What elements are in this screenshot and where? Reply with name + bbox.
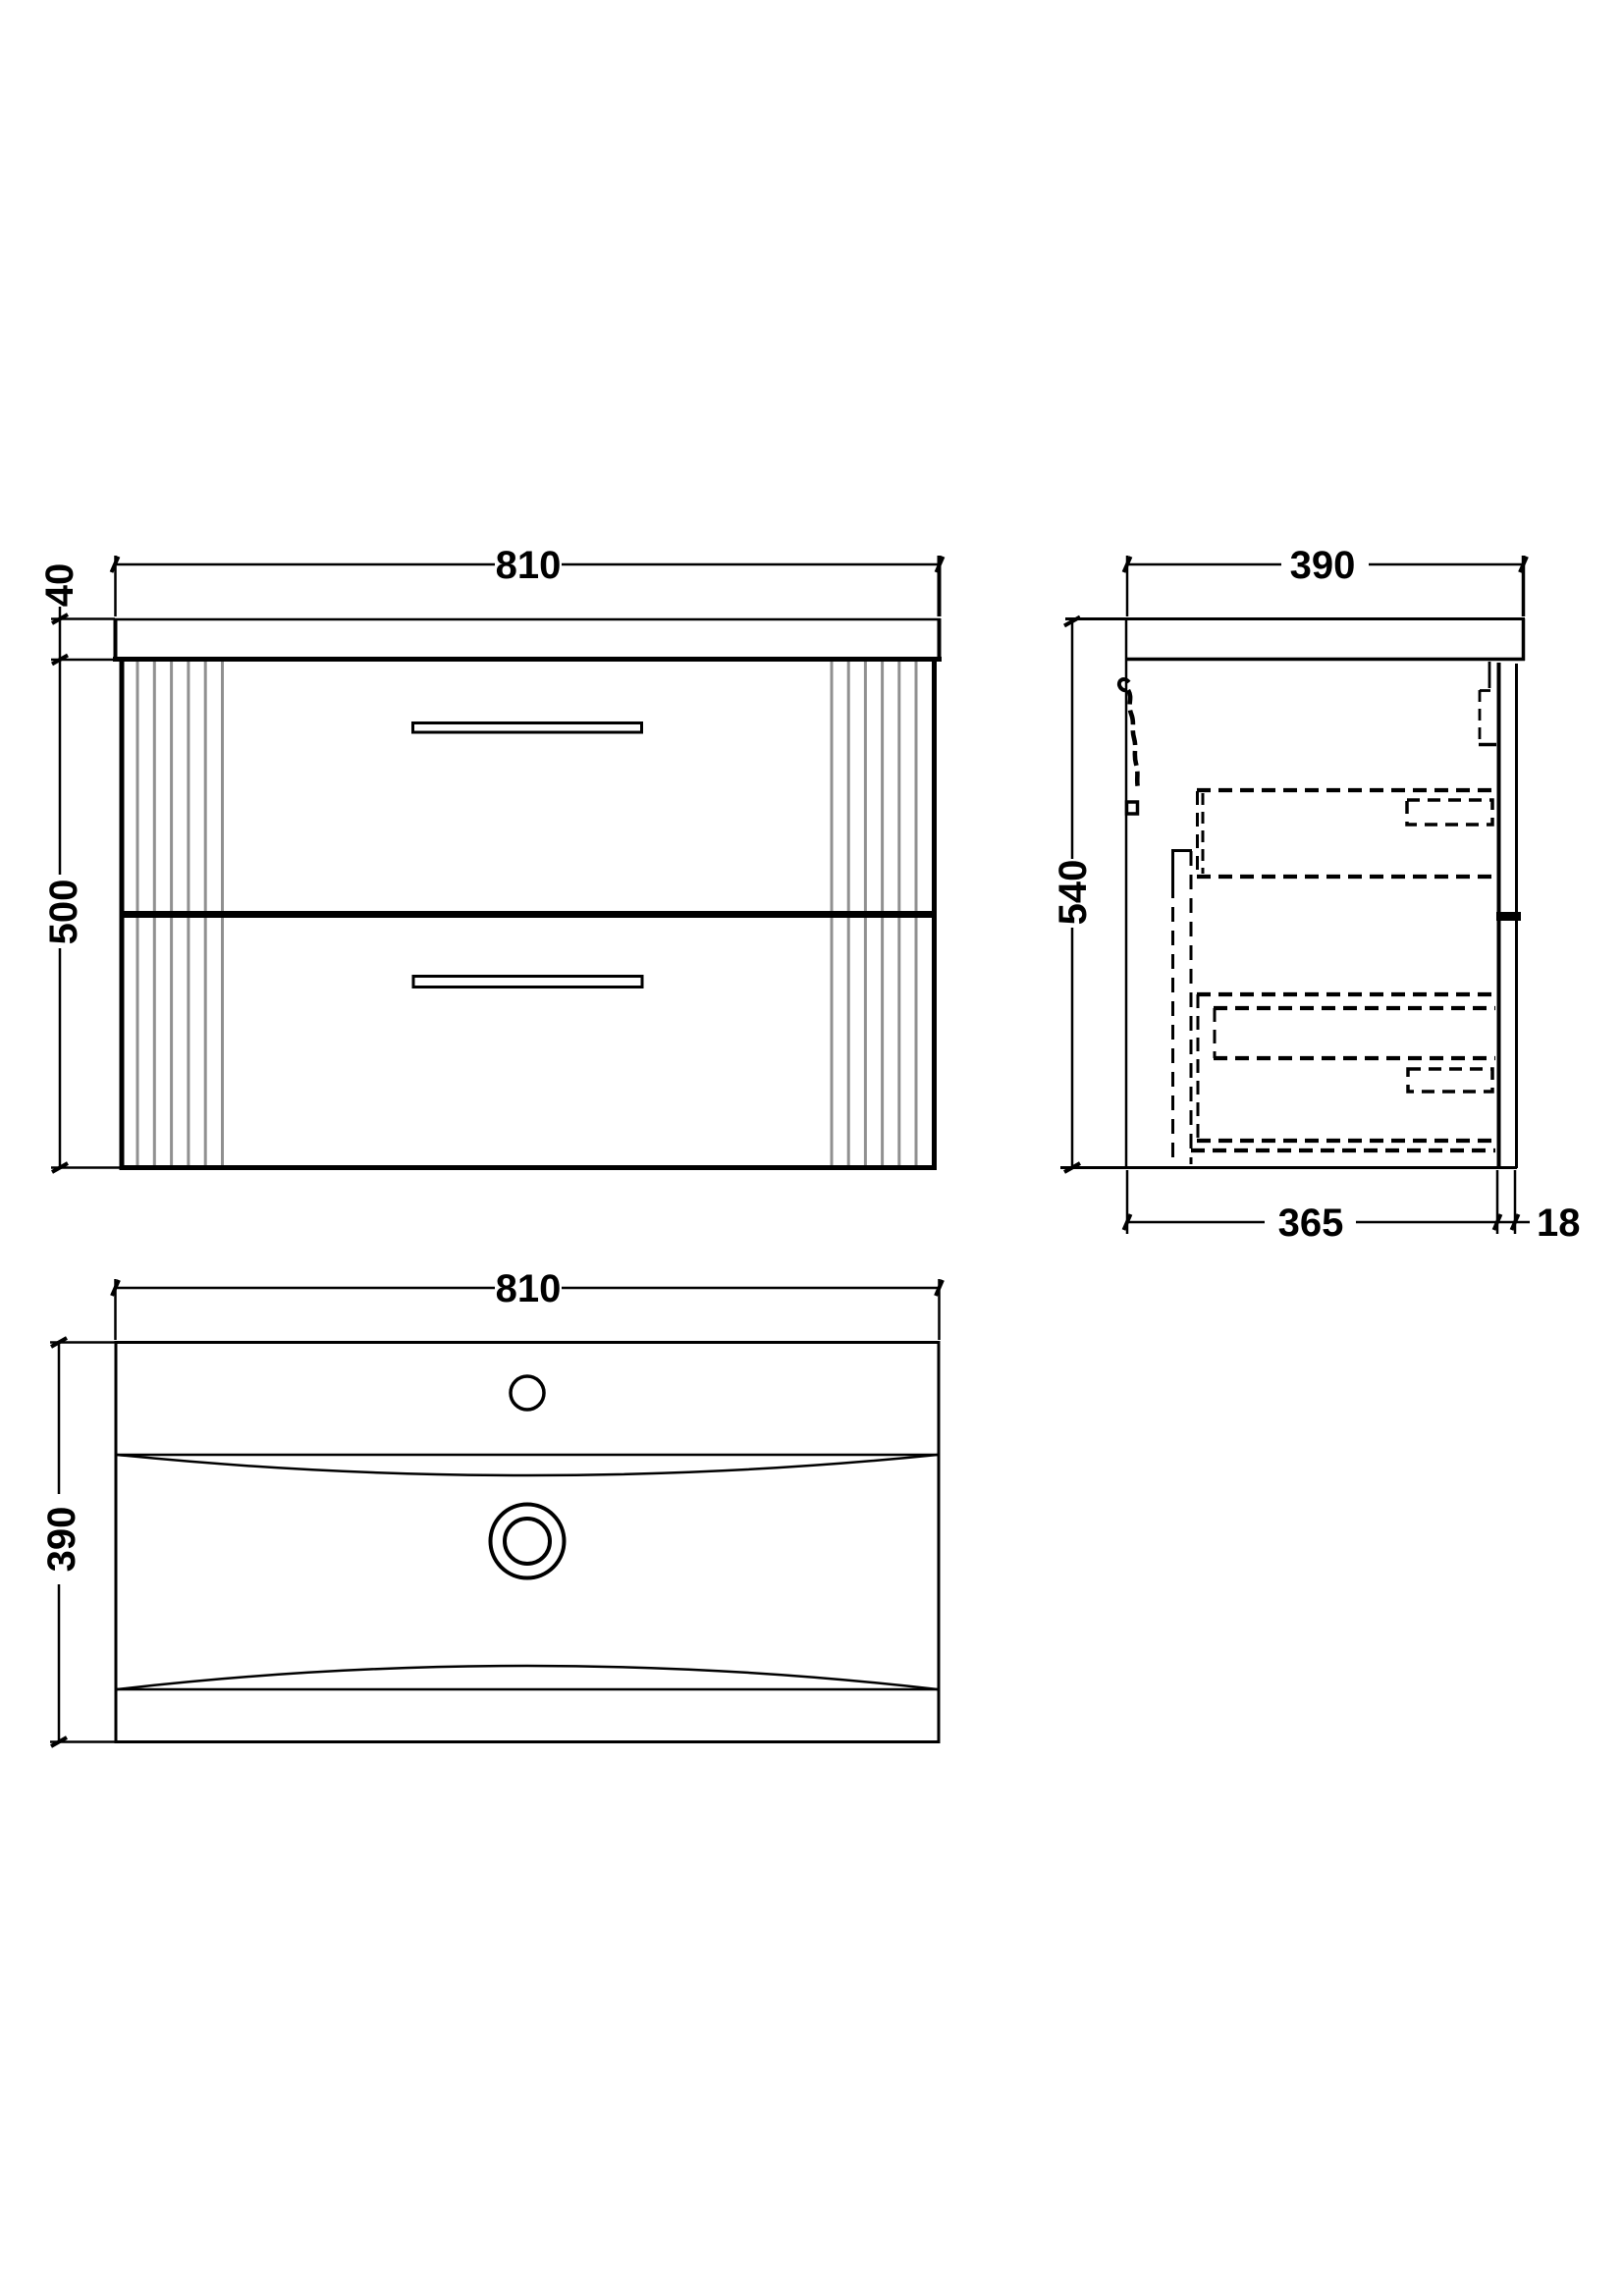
svg-text:810: 810 bbox=[496, 1267, 562, 1310]
svg-text:390: 390 bbox=[1290, 544, 1356, 587]
svg-text:365: 365 bbox=[1278, 1201, 1344, 1245]
svg-text:40: 40 bbox=[38, 563, 81, 608]
svg-text:18: 18 bbox=[1537, 1201, 1581, 1245]
svg-text:810: 810 bbox=[496, 544, 562, 587]
svg-text:390: 390 bbox=[40, 1507, 83, 1573]
svg-text:540: 540 bbox=[1052, 860, 1095, 926]
svg-text:500: 500 bbox=[42, 880, 85, 945]
